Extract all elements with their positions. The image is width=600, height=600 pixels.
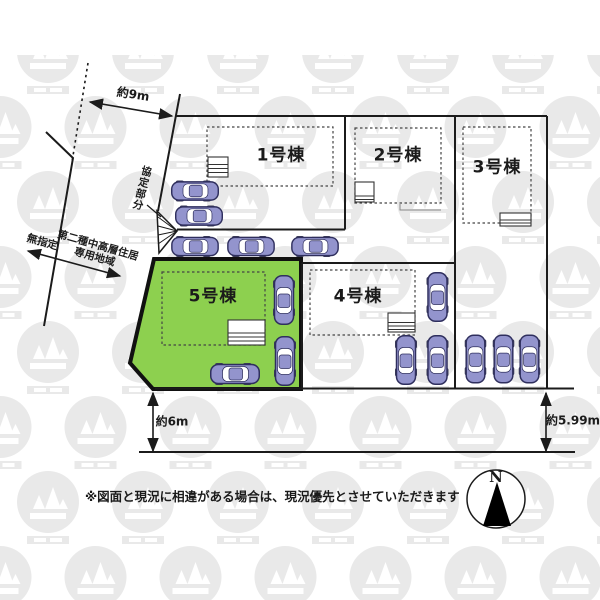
dim-label-right: 約5.99m: [546, 414, 600, 427]
building-2-notch: [400, 203, 441, 210]
steps-icon-lot1: [208, 157, 228, 177]
car-icon: [172, 236, 218, 257]
road-dotted-centerline: [72, 63, 88, 162]
disclaimer-note: ※図面と現況に相違がある場合は、現況優先とさせていただきます: [85, 490, 460, 504]
car-icon: [427, 273, 449, 322]
compass-north-label: N: [489, 469, 503, 486]
car-icon: [493, 335, 515, 383]
lot-2-label: 2号棟: [374, 147, 423, 166]
car-icon: [465, 335, 487, 383]
car-icon: [228, 236, 274, 257]
car-icon: [292, 236, 338, 257]
car-icon: [211, 363, 260, 385]
dim-arrow-top: [90, 102, 172, 116]
site-plan-canvas: 1号棟 2号棟 3号棟 4号棟 5号棟 約9m 約6m 約5.99m 無指定 第…: [0, 0, 600, 600]
car-icon: [273, 276, 295, 325]
lot-4-label: 4号棟: [334, 288, 383, 307]
site-plan-geometry: [0, 0, 600, 600]
porch-icon-lot2: [355, 182, 374, 202]
car-icon: [274, 337, 296, 386]
car-icon: [519, 335, 541, 383]
steps-icon-lot5: [228, 320, 265, 345]
car-icon: [427, 336, 449, 385]
car-icon: [172, 180, 219, 201]
lot-3-label: 3号棟: [473, 159, 522, 178]
car-icon: [176, 205, 223, 226]
lot-1-label: 1号棟: [257, 147, 306, 166]
steps-icon-lot4: [388, 313, 415, 332]
lot-5-label: 5号棟: [189, 288, 238, 307]
dim-label-left: 約6m: [156, 415, 189, 428]
car-icon: [395, 336, 417, 385]
porch-icon-lot3: [500, 213, 531, 226]
